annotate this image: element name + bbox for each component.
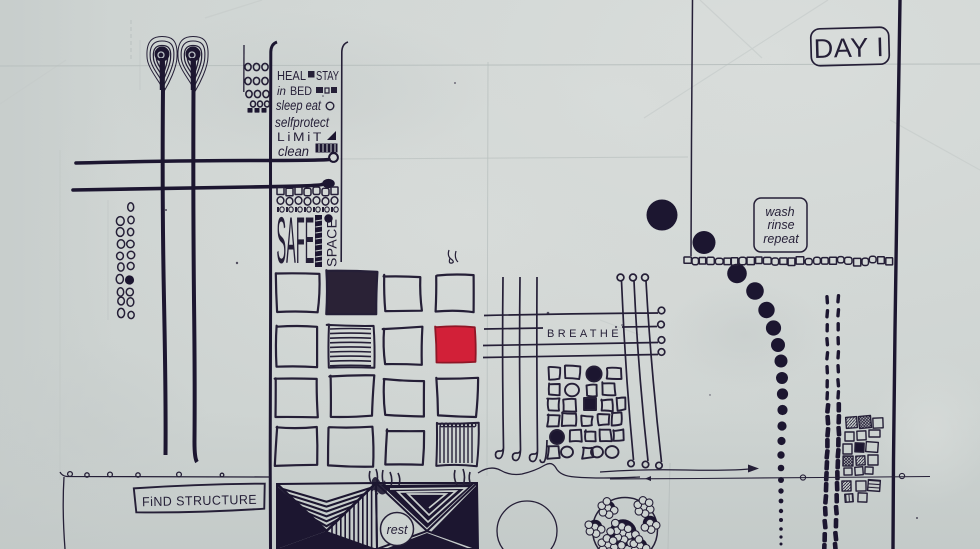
svg-text:clean: clean [278,144,309,159]
svg-text:HEAL: HEAL [277,68,306,83]
svg-text:wash: wash [765,205,794,219]
svg-text:DAY I: DAY I [813,32,884,64]
svg-text:BED: BED [290,86,312,98]
svg-text:in: in [277,86,286,98]
svg-text:SAFE: SAFE [277,205,315,278]
svg-text:sleep eat: sleep eat [276,98,322,113]
svg-text:STAY: STAY [316,68,339,83]
svg-text:SPACE: SPACE [324,219,340,267]
svg-text:selfprotect: selfprotect [275,115,330,130]
svg-text:BREATHE: BREATHE [547,328,622,340]
svg-text:rinse: rinse [767,218,794,232]
svg-text:LiMiT: LiMiT [277,132,324,144]
svg-text:FiND STRUCTURE: FiND STRUCTURE [142,492,257,509]
svg-text:repeat: repeat [763,232,799,246]
svg-text:rest: rest [387,523,408,537]
